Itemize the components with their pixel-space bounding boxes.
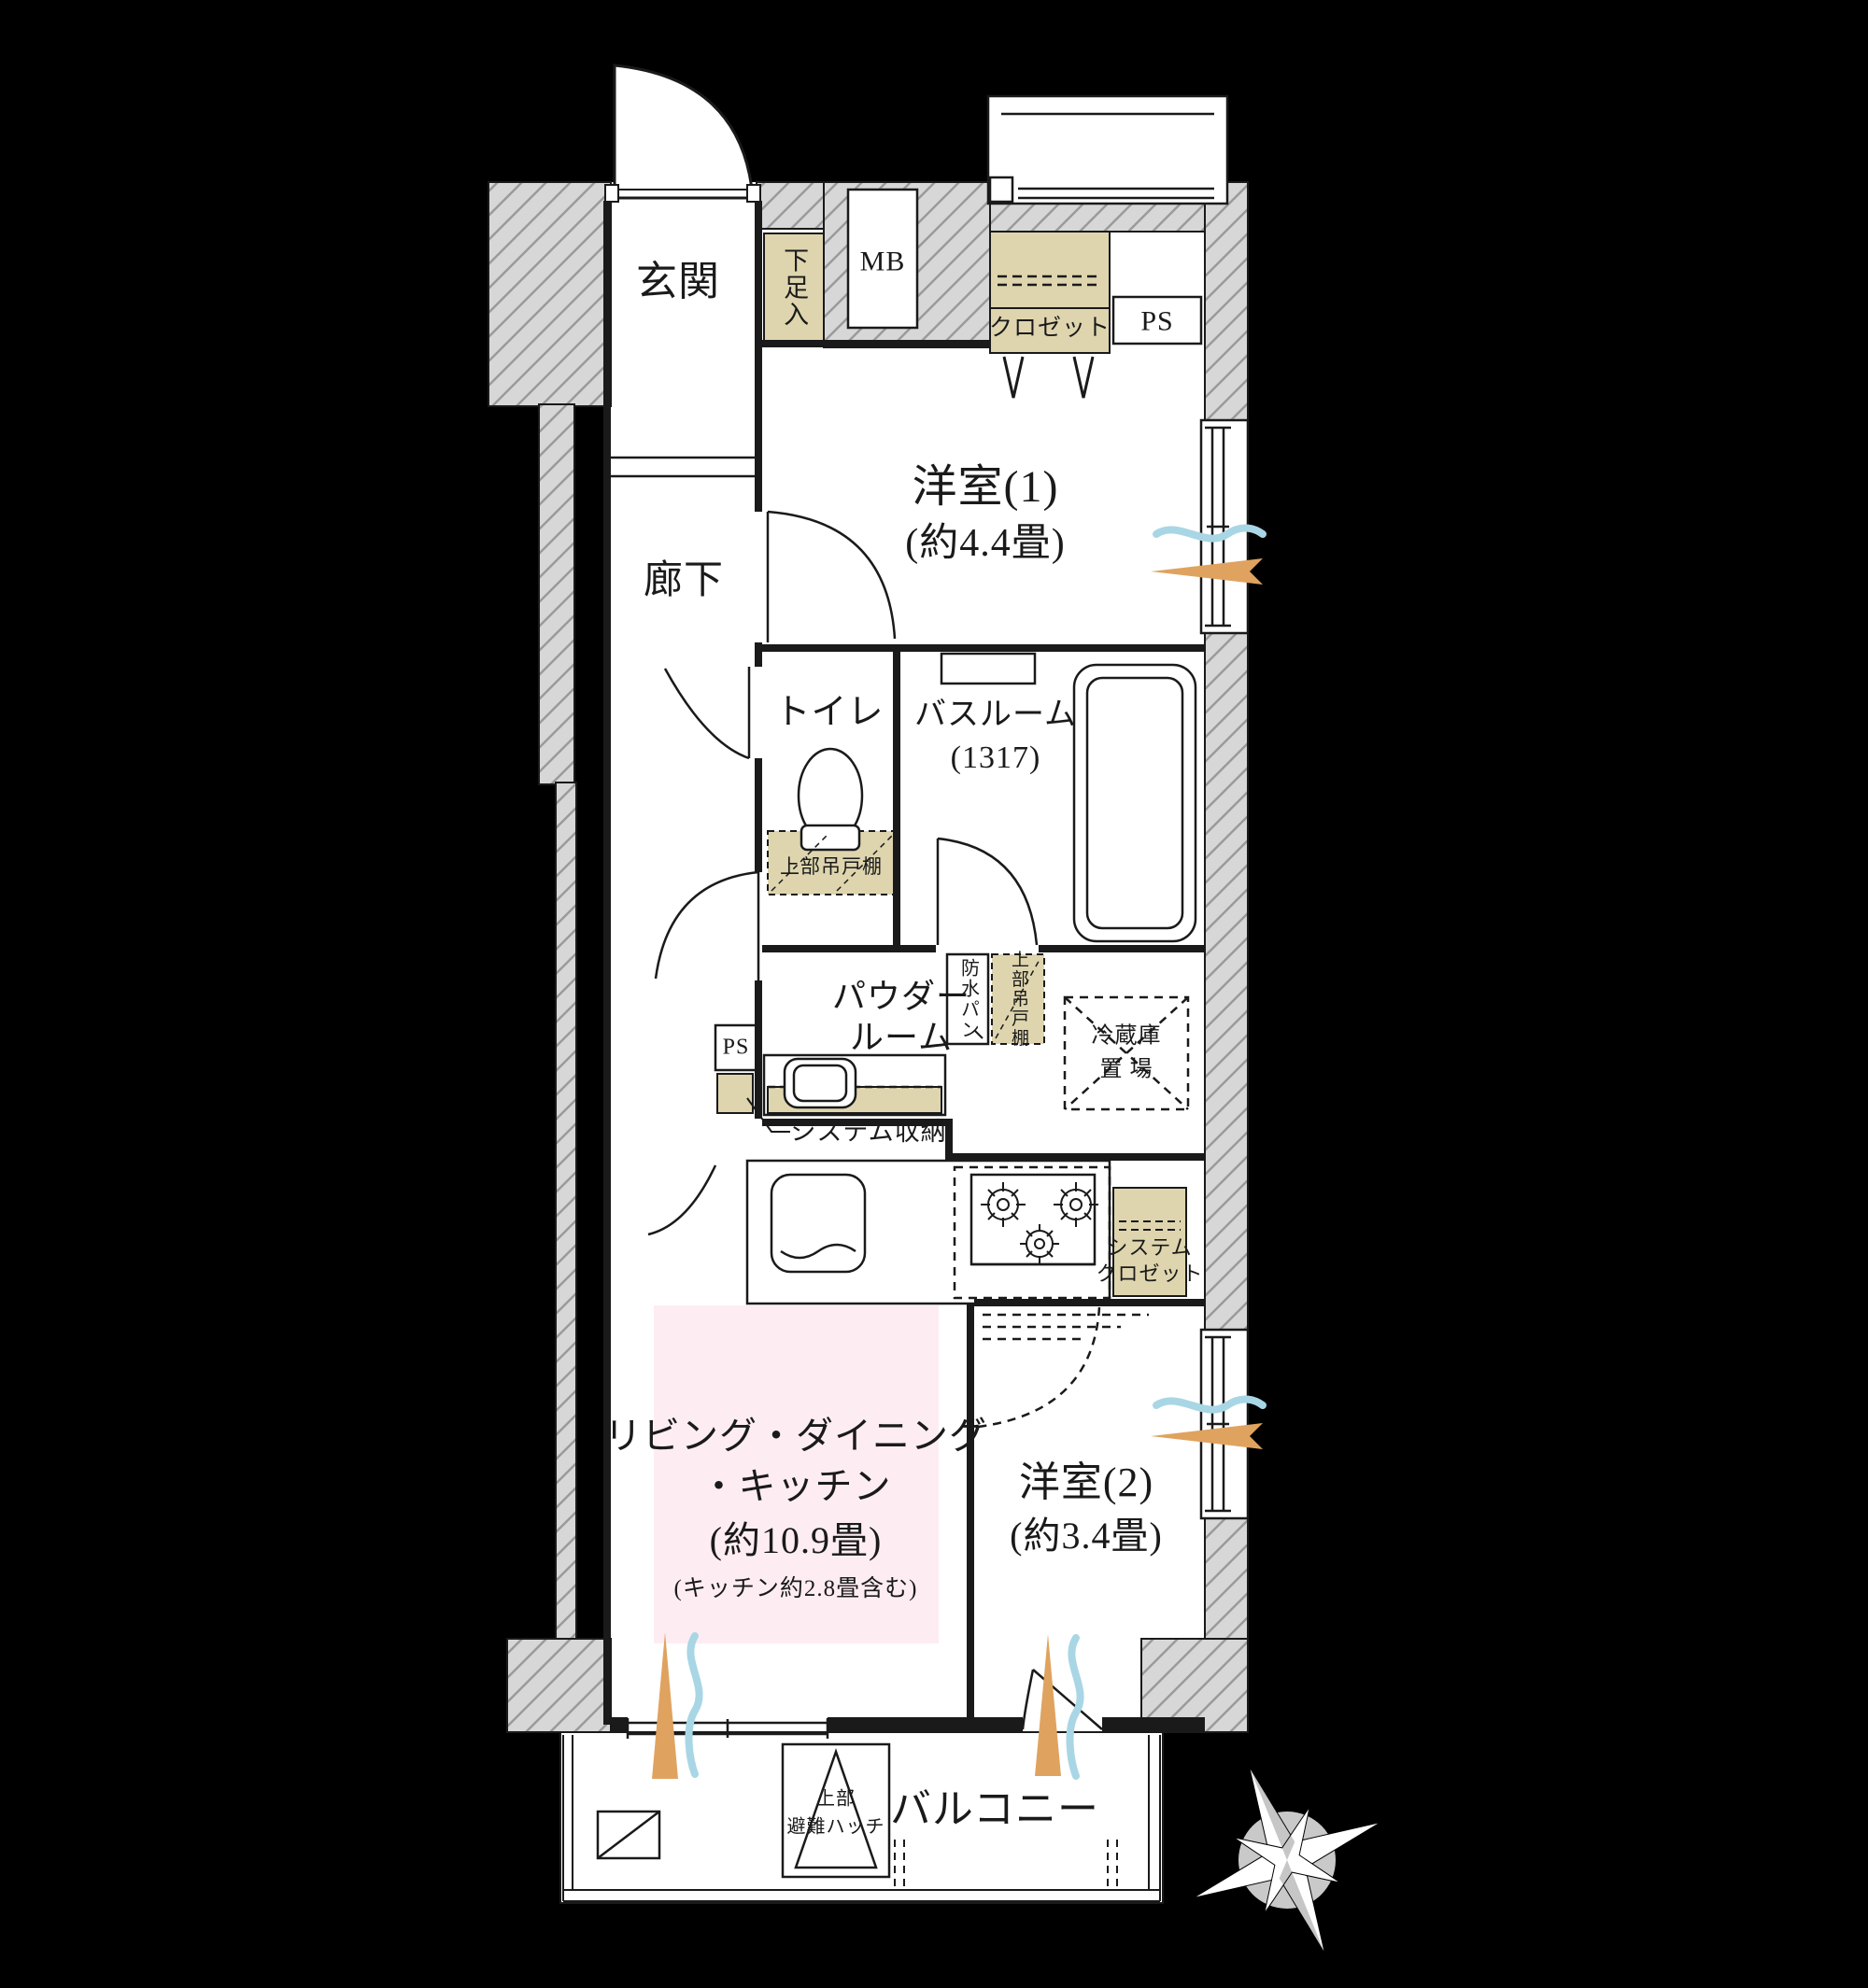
label-closet: クロゼット: [989, 317, 1111, 341]
label-system-closet-2: クロゼット: [1096, 1262, 1203, 1284]
system-storage-box: [717, 1074, 753, 1113]
label-hatch-2: 避難ハッチ: [787, 1818, 885, 1838]
floor-plan-canvas: 玄関 下足入 MB クロゼット PS 洋室(1) (約4.4畳) 廊下 トイレ …: [0, 0, 1868, 1988]
label-system-storage: システム収納: [790, 1119, 946, 1145]
label-powder-1: パウダー: [832, 980, 970, 1015]
label-balcony: バルコニー: [890, 1788, 1099, 1831]
label-bathroom: バスルーム: [914, 698, 1077, 732]
label-ldk-4: (キッチン約2.8畳含む): [674, 1577, 918, 1601]
label-shoe-cabinet: 下足入: [781, 247, 807, 329]
label-ps-top: PS: [1140, 306, 1173, 336]
label-room1: 洋室(1): [913, 464, 1059, 511]
label-room2-size: (約3.4畳): [1010, 1516, 1163, 1556]
toilet-fixture: [799, 749, 862, 850]
label-system-closet-1: システム: [1107, 1236, 1192, 1258]
label-hatch-1: 上部: [816, 1790, 856, 1810]
label-toilet-cabinet: 上部吊戸棚: [780, 856, 883, 877]
label-ldk-2: ・キッチン: [700, 1467, 892, 1506]
label-upper-cabinet: 上部吊戸棚: [1009, 951, 1027, 1049]
label-waterproof-pan: 防水パン: [958, 958, 978, 1040]
room2-window: [1201, 1330, 1248, 1518]
label-room2: 洋室(2): [1019, 1461, 1153, 1504]
label-toilet: トイレ: [774, 695, 884, 732]
upper-window-bay: [988, 96, 1227, 204]
label-fridge-1: 冷蔵庫: [1092, 1024, 1162, 1048]
label-room1-size: (約4.4畳): [905, 523, 1065, 564]
label-powder-2: ルーム: [850, 1021, 953, 1056]
label-fridge-2: 置 場: [1100, 1058, 1153, 1081]
label-ldk-3: (約10.9畳): [710, 1521, 883, 1560]
label-bathroom-size: (1317): [951, 741, 1041, 775]
label-ps-mid: PS: [723, 1036, 750, 1059]
label-ldk-1: リビング・ダイニング: [604, 1417, 987, 1456]
label-genkan: 玄関: [636, 261, 720, 303]
label-corridor: 廊下: [644, 560, 724, 601]
label-mb: MB: [860, 247, 906, 276]
